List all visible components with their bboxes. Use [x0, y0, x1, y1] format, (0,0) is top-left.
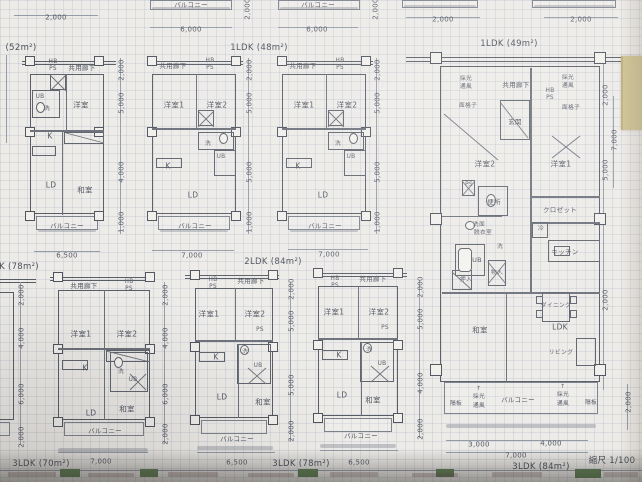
room-label: 洋室1	[164, 101, 185, 109]
room-label: 洋室2	[369, 308, 390, 316]
dimension-label: 2,000	[119, 59, 126, 81]
annotation-label: 脱衣室	[474, 231, 492, 237]
annotation-label: バルコニー	[178, 223, 212, 230]
annotation-label: 冷	[538, 227, 544, 233]
room-label: LD	[46, 181, 57, 189]
room-label: 和室	[77, 186, 93, 194]
annotation-label: PS	[125, 287, 133, 293]
dimension-label: 6,500	[348, 460, 370, 467]
annotation-label: 採光	[473, 395, 485, 401]
unit-title: 縮尺 1/100	[589, 457, 636, 466]
dimension-label: 5,000	[247, 161, 254, 183]
annotation-label: 隔板	[450, 402, 462, 408]
annotation-label: HB	[49, 60, 58, 66]
dimension-label: 2,000	[418, 276, 425, 298]
annotation-label: 共用廊下	[70, 283, 97, 290]
room-label: 洋室2	[117, 330, 138, 338]
room-label: LD	[217, 393, 228, 401]
annotation-label: 物入	[491, 271, 503, 277]
diagonal-mark	[106, 351, 150, 362]
dimension-label: 2,000	[19, 284, 26, 306]
unit-title: 3LDK (70m²)	[12, 460, 69, 469]
dimension-label: 1,000	[119, 211, 126, 233]
annotation-label: PS	[256, 328, 264, 334]
annotation-label: PS	[381, 326, 389, 332]
annotation-label: PS	[209, 285, 217, 291]
dimension-label: 6,000	[180, 27, 202, 34]
annotation-label: 共用廊下	[359, 276, 386, 283]
annotation-label: UB	[347, 155, 356, 161]
annotation-label: 共用廊下	[502, 82, 529, 89]
dimension-label: 6,000	[163, 383, 170, 405]
dimension-label: 6,000	[19, 383, 26, 405]
unit-title: 1LDK (48m²)	[230, 44, 287, 53]
room-label: 洋室1	[294, 101, 315, 109]
room-label: 洋室1	[199, 310, 220, 318]
annotation-label: 通風	[562, 84, 574, 90]
annotation-label: バルコニー	[174, 2, 208, 9]
diagonal-mark	[66, 133, 104, 143]
room-label: K	[295, 162, 300, 170]
room-label: 洋室1	[551, 160, 572, 168]
room-label: 洋室1	[324, 308, 345, 316]
room-label: 洋室1	[71, 330, 92, 338]
annotation-label: 共用廊下	[68, 65, 95, 72]
annotation-label: 洗	[205, 142, 211, 148]
annotation-label: 洗	[242, 350, 248, 356]
dimension-label: 5,000	[418, 308, 425, 330]
annotation-label: リビング	[549, 351, 573, 357]
dimension-label: 3,000	[468, 442, 490, 449]
annotation-label: ↑	[476, 387, 481, 393]
dimension-label: 7,000	[181, 253, 203, 260]
annotation-label: UB	[472, 257, 482, 264]
dimension-label: 2,000	[373, 0, 380, 20]
annotation-label: バルコニー	[50, 223, 84, 230]
annotation-label: PS	[206, 66, 214, 72]
dimension-label: 2,000	[570, 17, 592, 24]
floor-plan-sheet: 2,000バルコニー6,000バルコニー6,0002,0002,0002,000…	[0, 0, 642, 482]
annotation-label: PS	[49, 67, 57, 73]
annotation-label: 押入	[460, 278, 472, 284]
annotation-label: 通風	[460, 85, 472, 91]
room-label: LD	[188, 191, 199, 199]
annotation-label: 洗	[497, 245, 503, 251]
dimension-label: 4,000	[19, 327, 26, 349]
annotation-label: HB	[206, 59, 215, 65]
annotation-label: バルコニー	[301, 2, 335, 9]
dimension-label: 2,000	[19, 426, 26, 448]
annotation-label: 玄関	[508, 119, 522, 126]
dimension-label: 2,000	[603, 289, 610, 311]
annotation-label: UB	[217, 155, 226, 161]
room-label: 和室	[119, 405, 135, 413]
annotation-label: 採光	[460, 77, 472, 83]
dimension-label: 2,000	[45, 15, 67, 22]
annotation-label: UB	[129, 378, 138, 384]
dimension-label: 2,000	[289, 278, 296, 300]
dimension-label: 6,500	[56, 253, 78, 260]
annotation-label: UB	[36, 95, 45, 101]
room-label: 洋室	[73, 101, 89, 109]
annotation-label: 共用廊下	[237, 278, 264, 285]
annotation-label: 洗面	[473, 223, 485, 229]
room-label: K	[82, 364, 87, 372]
dimension-label: 5,000	[375, 92, 382, 114]
unit-title: 2LDK (84m²)	[244, 258, 301, 267]
room-label: K	[47, 132, 52, 140]
dimension-label: 4,000	[540, 441, 562, 448]
dimension-label: 2,000	[418, 418, 425, 440]
annotation-label: 採光	[557, 393, 569, 399]
dimension-label: 2,000	[626, 391, 633, 413]
room-label: LD	[318, 191, 329, 199]
diagonal-mark	[444, 114, 498, 160]
annotation-label: HB	[125, 280, 134, 286]
dimension-label: 5,000	[289, 310, 296, 332]
dimension-label: 2,000	[245, 0, 252, 20]
dimension-label: 4,000	[418, 372, 425, 394]
annotation-label: 洗	[335, 142, 341, 148]
annotation-label: 隔板	[585, 401, 597, 407]
annotation-label: キッチン	[551, 249, 578, 256]
dimension-label: 2,000	[432, 17, 454, 24]
room-label: LDK	[552, 323, 568, 331]
diagonal-lines-layer	[0, 0, 642, 482]
dimension-label: 7,000	[612, 129, 619, 151]
room-label: 洋室2	[475, 160, 496, 168]
annotation-label: 洗	[44, 107, 50, 113]
room-label: 和室	[365, 396, 381, 404]
annotation-label: 洗	[366, 348, 372, 354]
dimension-label: 1,000	[247, 211, 254, 233]
annotation-label: 洗	[118, 370, 124, 376]
annotation-label: 面格子	[562, 106, 580, 112]
annotation-label: 通風	[557, 402, 569, 408]
annotation-label: クロゼット	[543, 207, 577, 214]
annotation-label: バルコニー	[88, 428, 122, 435]
unit-title: K (78m²)	[0, 263, 39, 272]
room-label: 洋室2	[207, 101, 228, 109]
dimension-label: 5,000	[119, 92, 126, 114]
unit-title: 1LDK (49m²)	[480, 40, 537, 49]
dimension-label: 4,000	[119, 161, 126, 183]
room-label: 洋室2	[337, 101, 358, 109]
room-label: K	[213, 353, 218, 361]
dimension-label: 2,000	[163, 284, 170, 306]
dimension-label: 2,000	[163, 423, 170, 445]
room-label: K	[165, 162, 170, 170]
annotation-label: 通風	[473, 404, 485, 410]
room-label: LD	[86, 409, 97, 417]
annotation-label: HB	[331, 277, 340, 283]
annotation-label: PS	[336, 66, 344, 72]
dimension-label: 5,000	[289, 374, 296, 396]
dimension-label: 2,000	[247, 59, 254, 81]
unit-title: 3LDK (78m²)	[272, 460, 329, 469]
dimension-label: 4,000	[163, 327, 170, 349]
annotation-label: PS	[465, 183, 473, 189]
annotation-label: UB	[254, 364, 263, 370]
annotation-label: ダイニング	[541, 304, 572, 310]
annotation-label: 共用廊下	[289, 63, 316, 70]
room-label: 和室	[472, 326, 488, 334]
dimension-label: 7,000	[505, 453, 527, 460]
dimension-label: 5,000	[375, 161, 382, 183]
dimension-label: 5,000	[603, 159, 610, 181]
annotation-label: バルコニー	[220, 436, 254, 443]
unit-title: 3LDK (84m²)	[512, 463, 569, 472]
annotation-label: HB	[209, 278, 218, 284]
annotation-label: ↑	[560, 385, 565, 391]
room-label: 和室	[255, 398, 271, 406]
dimension-label: 2,000	[603, 84, 610, 106]
annotation-label: PS	[546, 96, 554, 102]
annotation-label: 共用廊下	[159, 63, 186, 70]
annotation-label: 採光	[562, 76, 574, 82]
dimension-label: 5,000	[247, 92, 254, 114]
room-label: LD	[337, 391, 348, 399]
annotation-label: 便所	[487, 199, 501, 206]
unit-title: (52m²)	[6, 44, 37, 53]
annotation-label: HB	[546, 89, 555, 95]
annotation-label: バルコニー	[308, 223, 342, 230]
room-label: 洋室2	[245, 310, 266, 318]
dimension-label: 1,000	[375, 211, 382, 233]
annotation-label: 面格子	[459, 104, 477, 110]
dimension-label: 6,000	[306, 27, 328, 34]
annotation-label: UB	[378, 362, 387, 368]
dimension-label: 2,000	[375, 59, 382, 81]
dimension-label: 2,000	[289, 420, 296, 442]
annotation-label: PS	[331, 284, 339, 290]
room-label: K	[336, 351, 341, 359]
dimension-label: 6,500	[226, 460, 248, 467]
annotation-label: HB	[336, 59, 345, 65]
annotation-label: バルコニー	[501, 397, 535, 404]
annotation-label: バルコニー	[344, 433, 378, 440]
dimension-label: 7,000	[318, 252, 340, 259]
dimension-label: 7,000	[90, 459, 112, 466]
